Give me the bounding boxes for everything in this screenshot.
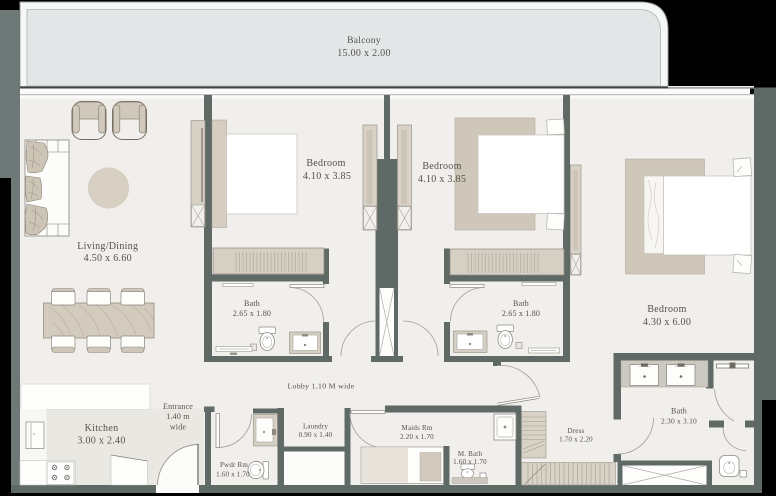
svg-text:0.90 x 1.40: 0.90 x 1.40	[299, 431, 333, 439]
svg-text:Bedroom: Bedroom	[306, 158, 345, 169]
svg-text:Bedroom: Bedroom	[647, 304, 686, 315]
svg-text:Bath: Bath	[513, 299, 529, 308]
svg-text:4.10 x 3.85: 4.10 x 3.85	[418, 174, 466, 185]
svg-text:2.65 x 1.80: 2.65 x 1.80	[233, 309, 271, 318]
svg-text:1.40 m: 1.40 m	[166, 412, 190, 421]
svg-text:wide: wide	[170, 423, 187, 432]
svg-text:1.60 x 1.70: 1.60 x 1.70	[216, 471, 250, 479]
svg-text:4.50 x 6.60: 4.50 x 6.60	[84, 253, 132, 264]
svg-text:Laundry: Laundry	[303, 423, 328, 431]
svg-text:Living/Dining: Living/Dining	[77, 241, 138, 252]
svg-text:4.30 x 6.00: 4.30 x 6.00	[643, 317, 691, 328]
svg-text:2.20 x 1.70: 2.20 x 1.70	[400, 433, 434, 441]
svg-text:Bedroom: Bedroom	[422, 161, 461, 172]
svg-text:3.00 x 2.40: 3.00 x 2.40	[77, 436, 125, 447]
svg-text:Maids Rm: Maids Rm	[402, 424, 433, 432]
svg-text:15.00 x 2.00: 15.00 x 2.00	[337, 48, 391, 59]
svg-text:Bath: Bath	[671, 407, 687, 416]
svg-text:Lobby 1.10 M wide: Lobby 1.10 M wide	[287, 382, 354, 391]
svg-text:4.10 x 3.85: 4.10 x 3.85	[303, 171, 351, 182]
svg-text:Kitchen: Kitchen	[85, 423, 119, 434]
svg-text:2.65 x 1.80: 2.65 x 1.80	[502, 309, 540, 318]
svg-text:Bath: Bath	[244, 299, 260, 308]
svg-text:1.60 x 1.70: 1.60 x 1.70	[453, 458, 487, 466]
svg-text:2.30 x 3.10: 2.30 x 3.10	[661, 417, 697, 426]
svg-text:1.70 x 2.20: 1.70 x 2.20	[559, 436, 593, 444]
svg-text:Entrance: Entrance	[163, 402, 193, 411]
svg-text:Dress: Dress	[568, 427, 585, 435]
svg-text:Balcony: Balcony	[347, 36, 381, 46]
svg-text:M. Bath: M. Bath	[458, 450, 483, 458]
svg-text:Pwdr Rm: Pwdr Rm	[220, 461, 248, 469]
